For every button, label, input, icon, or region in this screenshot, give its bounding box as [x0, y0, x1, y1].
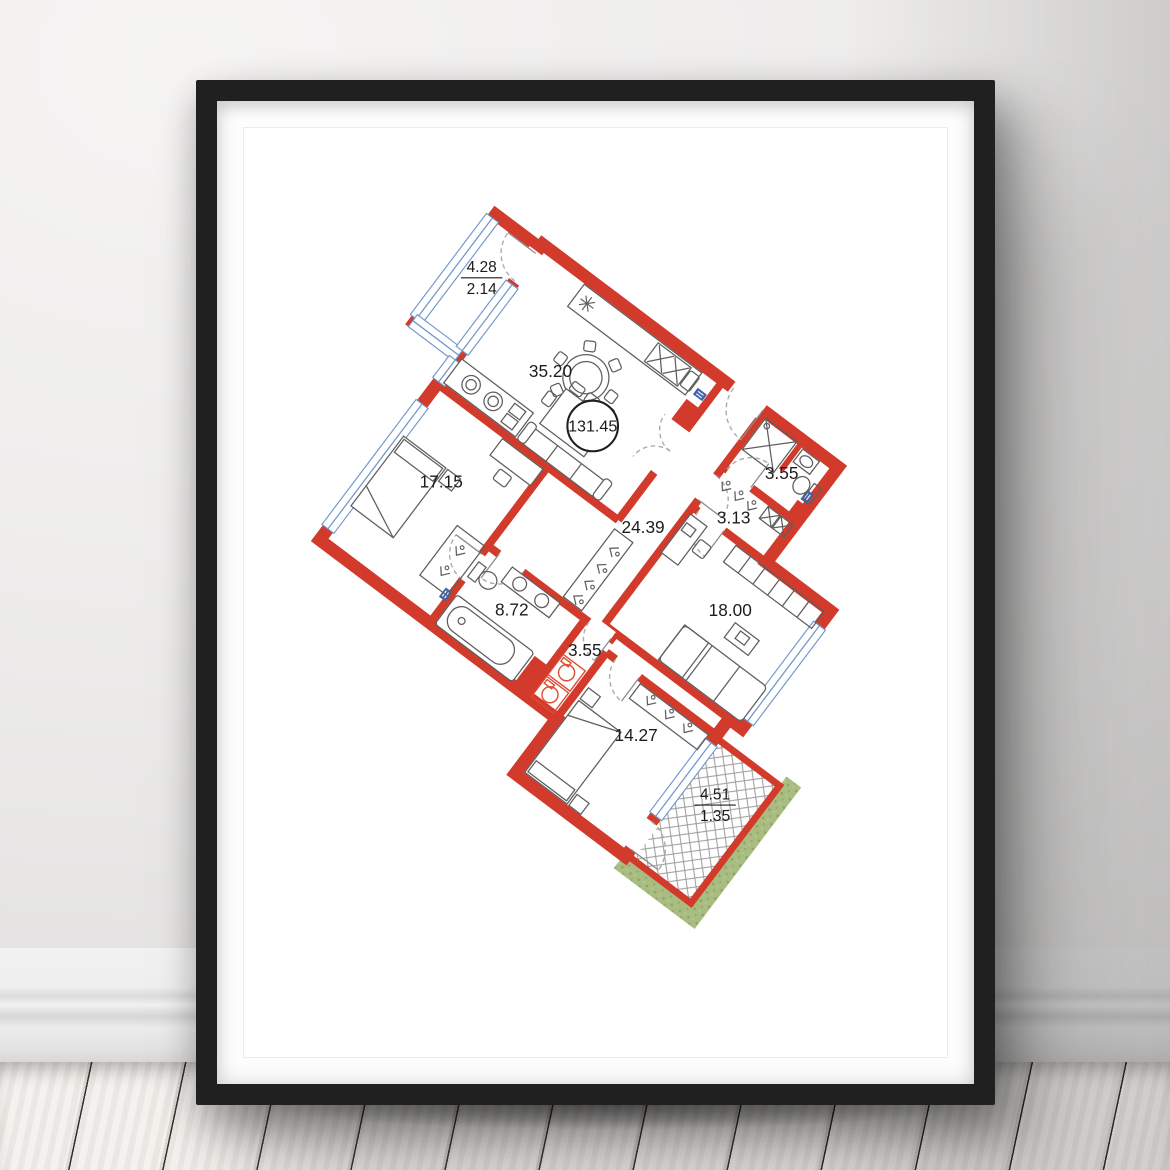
bedroom-right-label: 18.00	[709, 600, 752, 620]
total-area-badge: 131.45	[567, 401, 618, 452]
svg-text:2.14: 2.14	[467, 281, 498, 298]
bathroom-entrance-label: 3.55	[765, 463, 799, 483]
living-label: 35.20	[529, 361, 572, 381]
fridge-box	[671, 399, 700, 430]
svg-text:4.28: 4.28	[467, 259, 497, 276]
floor-plan: 4.28 2.14 35.20 131.45 3.55	[274, 158, 914, 1008]
svg-text:24.39: 24.39	[621, 517, 664, 537]
corridor-label: 24.39	[621, 517, 664, 537]
bathroom-main-label: 8.72	[495, 600, 529, 620]
kitchen-counter	[568, 284, 702, 395]
svg-text:3.55: 3.55	[568, 640, 602, 660]
bedroom-bottom-label: 14.27	[615, 725, 658, 745]
chair	[493, 469, 513, 488]
svg-text:35.20: 35.20	[529, 361, 572, 381]
bedroom-left-label: 17.15	[420, 472, 463, 492]
balcony-top-label: 4.28 2.14	[461, 259, 502, 298]
inner-walls	[282, 247, 903, 866]
svg-text:3.13: 3.13	[717, 508, 751, 528]
poster-paper: 4.28 2.14 35.20 131.45 3.55	[243, 127, 948, 1058]
svg-text:131.45: 131.45	[568, 418, 617, 436]
svg-text:18.00: 18.00	[709, 600, 752, 620]
svg-text:8.72: 8.72	[495, 600, 529, 620]
coffee-table	[724, 623, 759, 656]
floor-plan-svg: 4.28 2.14 35.20 131.45 3.55	[274, 158, 914, 1008]
svg-text:3.55: 3.55	[765, 463, 799, 483]
hallway-label: 3.13	[717, 508, 751, 528]
svg-text:1.35: 1.35	[700, 808, 730, 825]
svg-text:14.27: 14.27	[615, 725, 658, 745]
laundry-label: 3.55	[568, 640, 602, 660]
frame-mat: 4.28 2.14 35.20 131.45 3.55	[217, 101, 974, 1084]
poster-frame: 4.28 2.14 35.20 131.45 3.55	[196, 80, 995, 1105]
svg-text:17.15: 17.15	[420, 472, 463, 492]
svg-text:4.51: 4.51	[700, 786, 730, 803]
